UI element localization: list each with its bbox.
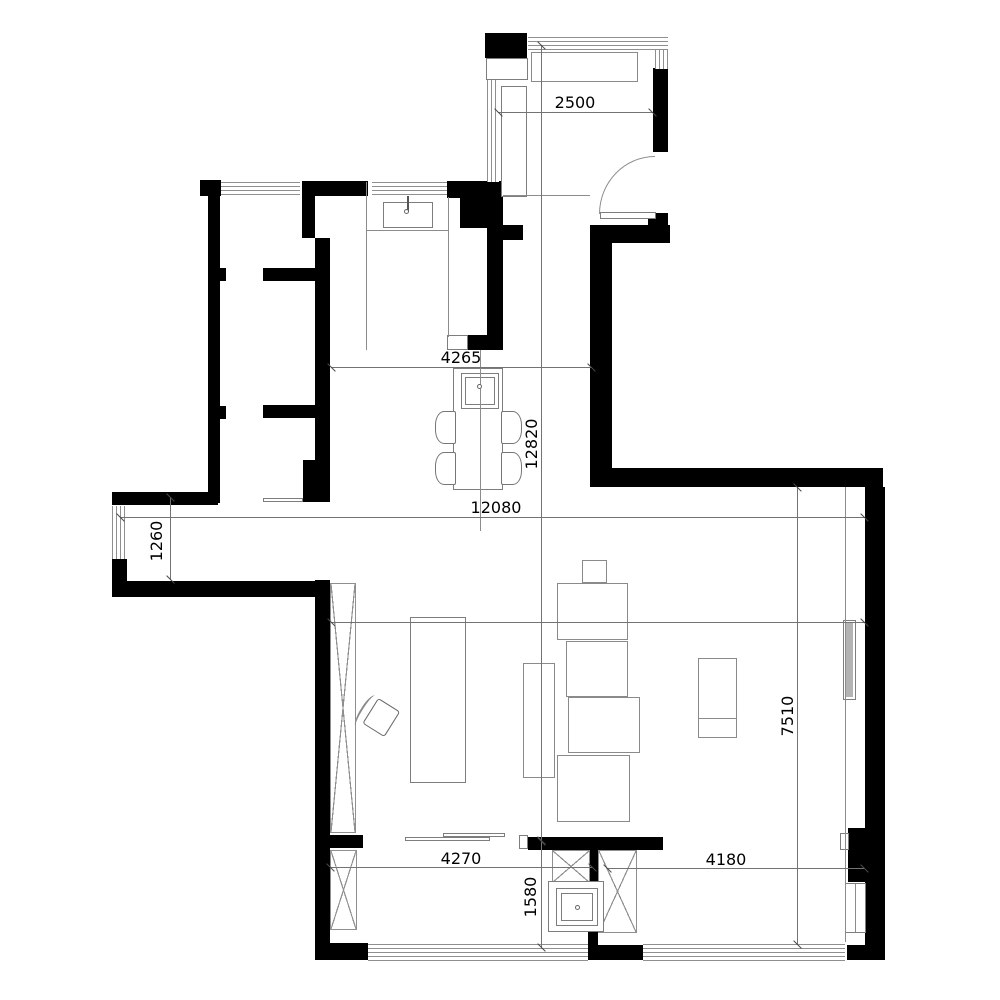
dining-chair — [501, 411, 522, 444]
furniture-outline — [410, 617, 466, 783]
reference-line — [480, 350, 481, 531]
furniture-outline — [582, 560, 607, 583]
wall-segment — [653, 68, 668, 152]
window — [487, 80, 499, 182]
window — [655, 50, 668, 69]
dimension-line — [170, 497, 171, 580]
reference-line — [366, 230, 448, 231]
furniture-outline — [523, 663, 555, 778]
furniture-outline — [405, 837, 490, 841]
furniture-outline — [519, 835, 528, 849]
wall-segment — [315, 580, 330, 960]
reference-line — [448, 197, 449, 337]
wall-segment — [302, 196, 315, 238]
dimension-line — [330, 867, 593, 868]
furniture-outline — [501, 86, 527, 197]
window — [368, 944, 588, 961]
wall-segment — [468, 335, 503, 350]
wall-segment — [263, 405, 315, 418]
dimension-line — [498, 112, 653, 113]
wall-segment — [487, 228, 503, 335]
furniture-outline — [447, 335, 468, 350]
wall-segment — [847, 945, 885, 960]
furniture-outline — [566, 641, 628, 697]
wall-segment — [315, 943, 368, 960]
dim-label-left-bay-width: 4270 — [441, 851, 482, 867]
window — [528, 37, 668, 50]
dimension-line — [331, 622, 865, 623]
reference-line — [699, 718, 737, 719]
furniture-outline — [486, 58, 528, 80]
furniture-outline — [263, 498, 303, 502]
furniture-outline — [531, 52, 638, 82]
tall-cabinet-x — [330, 583, 356, 833]
wall-segment — [112, 581, 330, 597]
dimension-line — [331, 367, 592, 368]
wall-segment — [590, 468, 883, 487]
dim-label-living-height: 7510 — [780, 696, 796, 737]
dim-label-right-bay-width: 4180 — [706, 852, 747, 868]
dim-label-laundry-height: 1580 — [523, 877, 539, 918]
dimension-line — [607, 868, 865, 869]
wall-segment — [485, 33, 527, 58]
dining-chair — [501, 452, 522, 485]
wall-segment — [865, 487, 885, 945]
wall-segment — [302, 181, 368, 196]
dimension-line — [797, 487, 798, 945]
cooktop-knob-icon — [477, 384, 482, 389]
window — [112, 506, 127, 559]
furniture-outline — [557, 583, 628, 640]
tall-cabinet-x — [330, 850, 357, 930]
furniture-outline — [443, 833, 505, 837]
floor-plan: 2500 4265 12820 12080 1260 8770 7510 427… — [0, 0, 1000, 1000]
wall-segment — [590, 243, 612, 487]
wall-segment — [112, 492, 218, 505]
reference-line — [855, 884, 856, 932]
wall-segment — [447, 181, 503, 198]
wall-segment — [848, 828, 865, 882]
wall-segment — [263, 268, 315, 281]
wall-segment — [487, 225, 523, 240]
dimension-line — [120, 517, 865, 518]
dining-chair — [435, 411, 456, 444]
window — [643, 944, 845, 961]
dimension-line — [541, 45, 542, 841]
lounge-chair — [352, 692, 405, 747]
dim-label-entry-width: 2500 — [555, 95, 596, 111]
wall-segment — [208, 268, 226, 281]
washing-machine-door-icon — [575, 905, 580, 910]
dimension-line — [541, 841, 542, 948]
wall-segment — [590, 225, 670, 243]
wall-segment — [315, 238, 330, 460]
window — [221, 182, 300, 196]
furniture-outline — [698, 658, 737, 738]
wall-segment — [208, 182, 220, 503]
dim-label-corridor-width: 1260 — [149, 521, 165, 562]
wall-segment — [330, 835, 363, 848]
reference-line — [503, 195, 590, 196]
reference-line — [366, 182, 367, 350]
wall-segment — [208, 406, 226, 419]
dim-label-total-height: 12820 — [524, 419, 540, 470]
dim-label-kitchen-width: 4265 — [441, 350, 482, 366]
reference-line — [845, 487, 846, 942]
wall-segment — [303, 460, 330, 502]
furniture-outline — [557, 755, 630, 822]
dim-label-total-width: 12080 — [471, 500, 522, 516]
door-swing-arc — [599, 156, 655, 214]
tv-screen — [846, 623, 853, 697]
window — [372, 182, 447, 196]
wall-segment — [588, 945, 645, 960]
furniture-outline — [568, 697, 640, 753]
wall-segment — [460, 198, 503, 228]
dining-chair — [435, 452, 456, 485]
faucet-valve-icon — [404, 209, 409, 214]
